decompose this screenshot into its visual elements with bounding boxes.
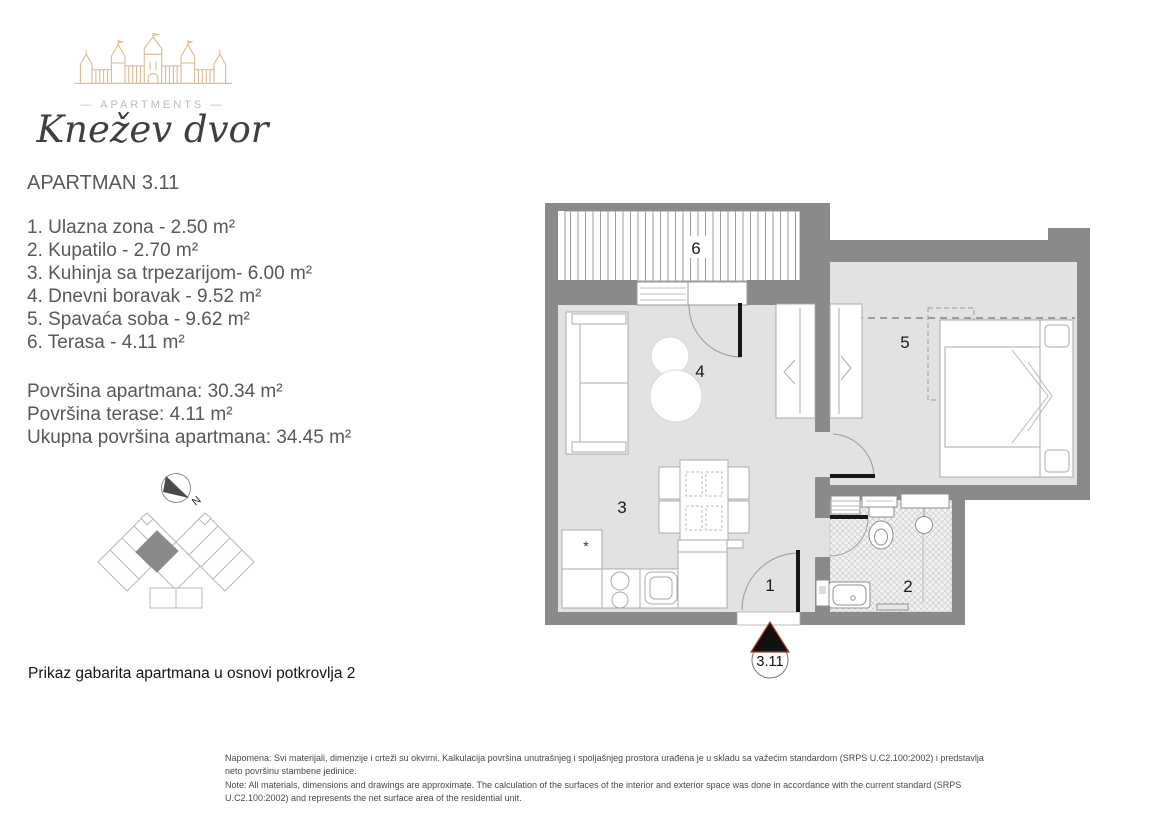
wall-segment [952,500,965,625]
room-number-bathroom: 2 [903,577,912,596]
bed [940,320,1073,477]
compass-icon: N [162,474,204,509]
wall-segment [815,305,830,432]
bath-hatch-strip [877,604,908,610]
room-number-kitchen: 3 [617,498,626,517]
wall-segment [545,203,800,211]
brand-name: Knežev dvor [35,111,270,150]
wall-segment [558,612,737,625]
castle-wall-b [124,66,143,83]
room-list-item: 3. Kuhinja sa trpezarijom- 6.00 m² [27,262,312,285]
key-stairs-right [176,588,202,608]
wall-segment [747,280,800,305]
floor-bath-door-gap [815,518,830,557]
page-title: APARTMAN 3.11 [27,172,179,195]
castle-far-left-tower [80,50,92,83]
castle-right-tower [181,41,195,84]
coffee-table-large [650,370,702,422]
room-list-item: 2. Kupatilo - 2.70 m² [27,239,312,262]
castle-far-right-tower [213,50,225,83]
entrance-door-leaf [796,550,800,612]
room-number-living: 4 [695,362,704,381]
room-number-entry: 1 [765,576,774,595]
entrance-marker-label: 3.11 [756,654,783,670]
bathroom-shelf [901,494,949,508]
castle-left-tower [111,41,125,84]
wall-segment [1077,262,1090,500]
wall-segment [800,612,965,625]
page: { "brand": { "apartments_label": "— APAR… [0,0,1150,813]
room-number-bedroom: 5 [900,333,909,352]
summary-terrace: Površina terase: 4.11 m² [27,403,351,426]
terrace-decking [565,211,800,281]
entrance-threshold [737,612,800,625]
wardrobe-living [776,304,815,418]
cooktop-burner [611,572,629,590]
wardrobe-bedroom [830,304,862,418]
entrance-marker: 3.11 [751,622,789,678]
wall-segment [1048,228,1090,240]
pillow [1045,325,1069,347]
building-key-plan [98,513,254,608]
compass-north-label: N [190,494,204,508]
floor-bedroom-door-gap [815,432,830,477]
cooktop-burner [612,592,628,608]
kitchen-star-symbol: * [583,538,589,554]
wall-segment [800,203,830,310]
note-line: neto površinu stambene jedinice. [225,765,984,778]
washbasin [829,582,870,608]
fridge [562,530,602,570]
castle-center-tower [144,33,161,83]
room-list-item: 4. Dnevni boravak - 9.52 m² [27,285,312,308]
wall-segment [815,477,830,518]
coffee-table-small [651,337,689,375]
summary-block: Površina apartmana: 30.34 m² Površina te… [27,380,351,449]
room-list-item: 5. Spavaća soba - 9.62 m² [27,308,312,331]
floor-plan: 6 4 5 3 1 2 * 3.11 [540,195,1100,685]
dining-set [659,460,749,542]
room-number-terrace: 6 [691,239,700,258]
wall-segment [558,280,637,305]
summary-area: Površina apartmana: 30.34 m² [27,380,351,403]
brand-block: — APARTMENTS — Knežev dvor [35,33,270,150]
bedroom-door-leaf [830,474,875,478]
toilet [869,507,894,549]
wall-segment [545,203,558,625]
note-line: U.C2.100:2002) and represents the net su… [225,792,984,805]
terrace-door-leaf [738,303,742,357]
key-right-wing [176,513,254,591]
location-key: N [85,460,265,615]
radiator [831,496,860,514]
castle-wall-d [194,70,213,84]
room-list: 1. Ulazna zona - 2.50 m² 2. Kupatilo - 2… [27,216,312,354]
castle-logo-icon [58,33,248,93]
entrance-arrow-icon [751,622,789,652]
bed-duvet [945,347,1040,447]
note-line: Note: All materials, dimensions and draw… [225,779,984,792]
bathroom-door-leaf [830,515,868,519]
disclaimer-notes: Napomena: Svi materijali, dimenzije i cr… [225,752,984,806]
summary-total: Ukupna površina apartmana: 34.45 m² [27,426,351,449]
room-list-item: 1. Ulazna zona - 2.50 m² [27,216,312,239]
castle-wall-c [161,66,180,83]
key-stairs-left [150,588,176,608]
wall-segment [830,240,1090,262]
pillow [1045,450,1069,472]
plan-caption: Prikaz gabarita apartmana u osnovi potkr… [28,665,355,683]
room-list-item: 6. Terasa - 4.11 m² [27,331,312,354]
castle-wall-a [92,70,111,84]
note-line: Napomena: Svi materijali, dimenzije i cr… [225,752,984,765]
